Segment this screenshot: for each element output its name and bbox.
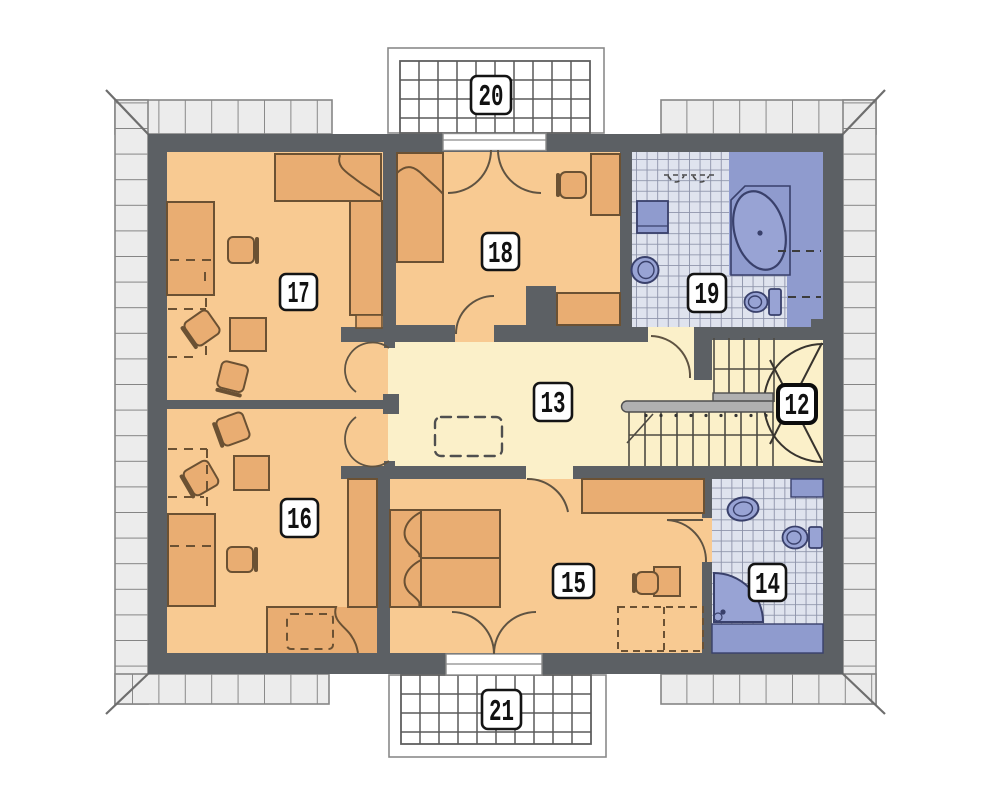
svg-text:16: 16 [287,503,312,538]
svg-text:17: 17 [288,277,310,312]
svg-text:19: 19 [695,278,720,313]
svg-text:14: 14 [755,568,780,603]
svg-text:18: 18 [488,237,513,272]
svg-text:12: 12 [785,389,810,424]
svg-text:21: 21 [489,695,514,730]
svg-text:13: 13 [541,387,566,422]
svg-text:15: 15 [561,567,586,602]
svg-text:20: 20 [479,80,504,115]
